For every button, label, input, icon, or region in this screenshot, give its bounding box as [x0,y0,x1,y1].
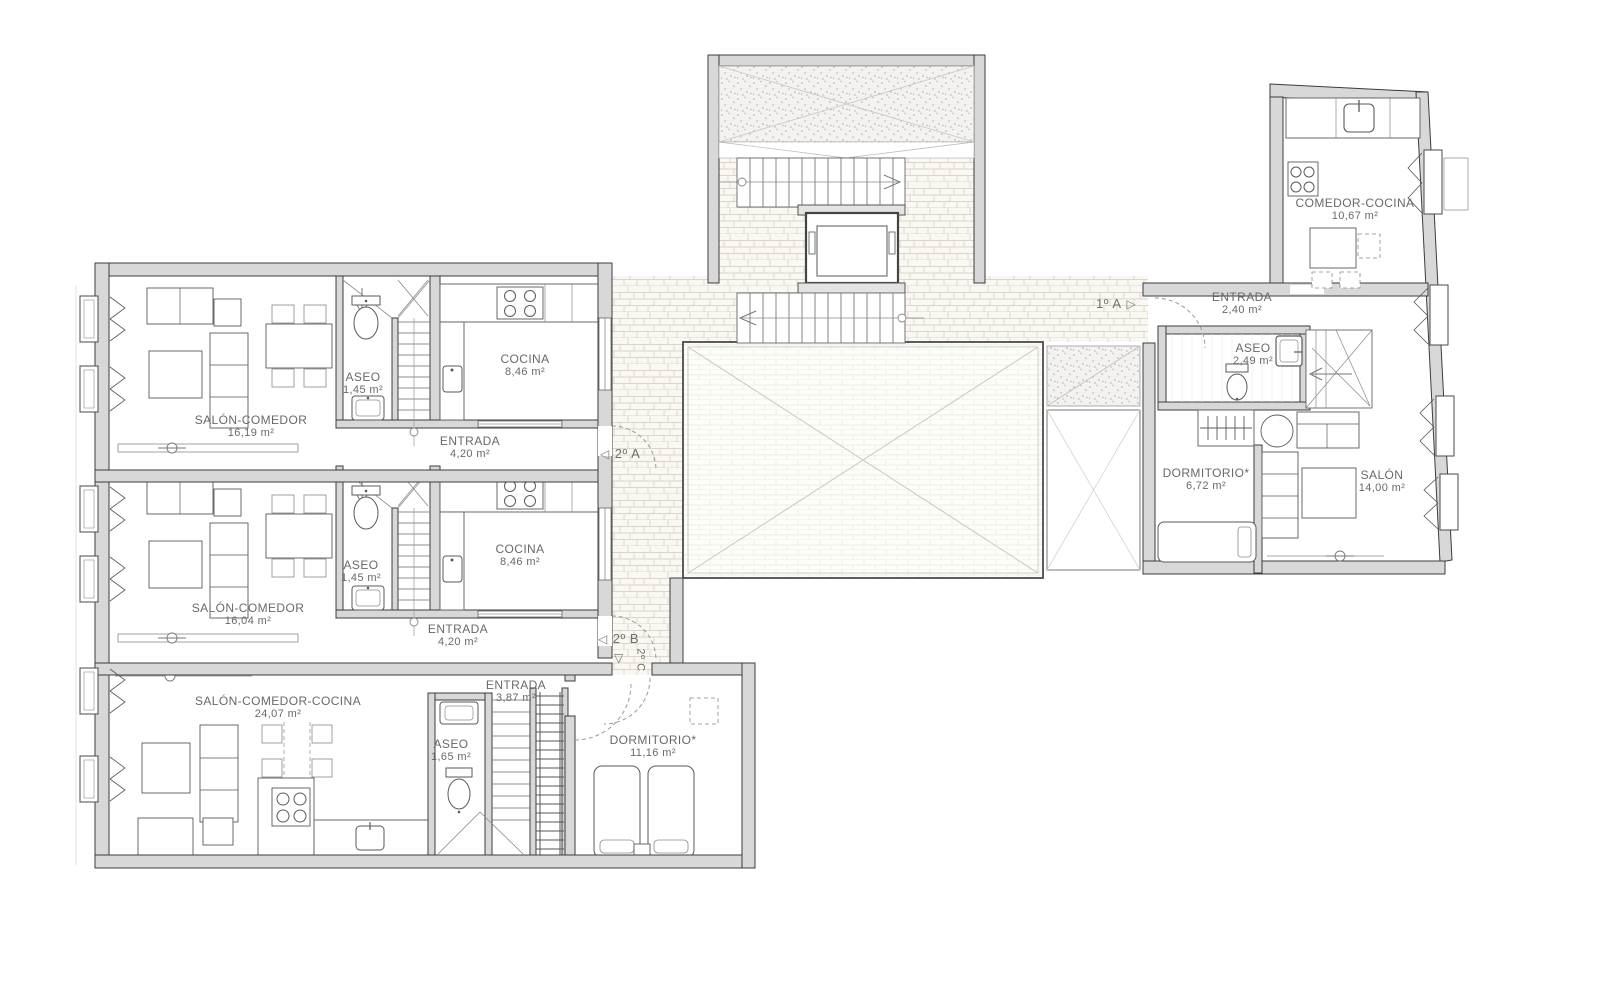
room-area: 1,45 m² [341,572,381,585]
room-label-2c-aseo: ASEO 1,65 m² [431,737,471,764]
unit-id: 2º A [615,446,641,461]
floor-plan: SALÓN-COMEDOR 16,19 m² ASEO 1,45 m² COCI… [0,0,1600,1000]
apartment-2a [118,276,656,470]
room-label-2b-entrada: ENTRADA 4,20 m² [428,622,488,649]
room-area: 10,67 m² [1296,210,1415,223]
room-label-2b-salon: SALÓN-COMEDOR 16,04 m² [192,601,305,628]
room-area: 24,07 m² [195,708,361,721]
room-name: SALÓN-COMEDOR [192,601,305,615]
apartment-1a [1143,84,1452,574]
room-name: ASEO [1233,341,1273,355]
room-area: 16,04 m² [192,615,305,628]
door-direction-left-icon: ◁ [598,633,608,645]
room-name: COCINA [500,352,549,366]
room-area: 1,65 m² [431,751,471,764]
room-name: ASEO [343,370,383,384]
unit-entry-marker-1a: 1º A ▷ [1096,296,1136,311]
room-label-1a-comedor-cocina: COMEDOR-COCINA 10,67 m² [1296,196,1415,223]
room-area: 8,46 m² [500,366,549,379]
room-area: 14,00 m² [1359,482,1406,495]
door-direction-right-icon: ▷ [1127,298,1137,310]
room-area: 2,40 m² [1212,304,1272,317]
room-area: 4,20 m² [428,636,488,649]
unit-entry-marker-2b: ◁ 2º B [598,631,639,646]
unit-id: 1º A [1096,296,1122,311]
room-area: 2,49 m² [1233,355,1273,368]
room-name: DORMITORIO* [1163,466,1250,480]
room-area: 1,45 m² [343,384,383,397]
patio-courtyard [683,342,1043,578]
room-label-1a-salon: SALÓN 14,00 m² [1359,468,1406,495]
room-name: COCINA [495,542,544,556]
unit-id: 2º C [634,648,646,671]
room-label-2b-cocina: COCINA 8,46 m² [495,542,544,569]
room-label-2c-salon: SALÓN-COMEDOR-COCINA 24,07 m² [195,694,361,721]
room-name: ASEO [431,737,471,751]
room-label-1a-aseo: ASEO 2,49 m² [1233,341,1273,368]
room-area: 3,87 m² [486,692,546,705]
elevator [798,205,905,293]
apartment-2b [118,466,656,660]
room-area: 6,72 m² [1163,480,1250,493]
room-area: 4,20 m² [440,448,500,461]
room-name: ENTRADA [428,622,488,636]
room-label-2a-entrada: ENTRADA 4,20 m² [440,434,500,461]
unit-entry-marker-2c: ▽ 2º C [614,652,652,664]
room-label-2c-dormitorio: DORMITORIO* 11,16 m² [610,733,697,760]
stair-flight-upper [718,158,905,207]
room-area: 11,16 m² [610,747,697,760]
room-label-2c-entrada: ENTRADA 3,87 m² [486,678,546,705]
room-label-1a-entrada: ENTRADA 2,40 m² [1212,290,1272,317]
room-name: SALÓN [1359,468,1406,482]
unit-id: 2º B [613,631,639,646]
room-label-1a-dormitorio: DORMITORIO* 6,72 m² [1163,466,1250,493]
door-direction-left-icon: ◁ [600,448,610,460]
room-name: ENTRADA [486,678,546,692]
door-direction-down-icon: ▽ [614,652,624,664]
room-name: ASEO [341,558,381,572]
room-name: DORMITORIO* [610,733,697,747]
room-area: 16,19 m² [195,427,308,440]
room-label-2b-aseo: ASEO 1,45 m² [341,558,381,585]
room-name: SALÓN-COMEDOR [195,413,308,427]
room-label-2a-aseo: ASEO 1,45 m² [343,370,383,397]
room-name: ENTRADA [440,434,500,448]
room-name: ENTRADA [1212,290,1272,304]
room-name: SALÓN-COMEDOR-COCINA [195,694,361,708]
stair-flight-lower [737,293,924,343]
room-label-2a-cocina: COCINA 8,46 m² [500,352,549,379]
unit-entry-marker-2a: ◁ 2º A [600,446,640,461]
room-label-2a-salon: SALÓN-COMEDOR 16,19 m² [195,413,308,440]
room-name: COMEDOR-COCINA [1296,196,1415,210]
room-area: 8,46 m² [495,556,544,569]
floor-plan-drawing [0,0,1600,1000]
lightwell [1047,346,1140,570]
